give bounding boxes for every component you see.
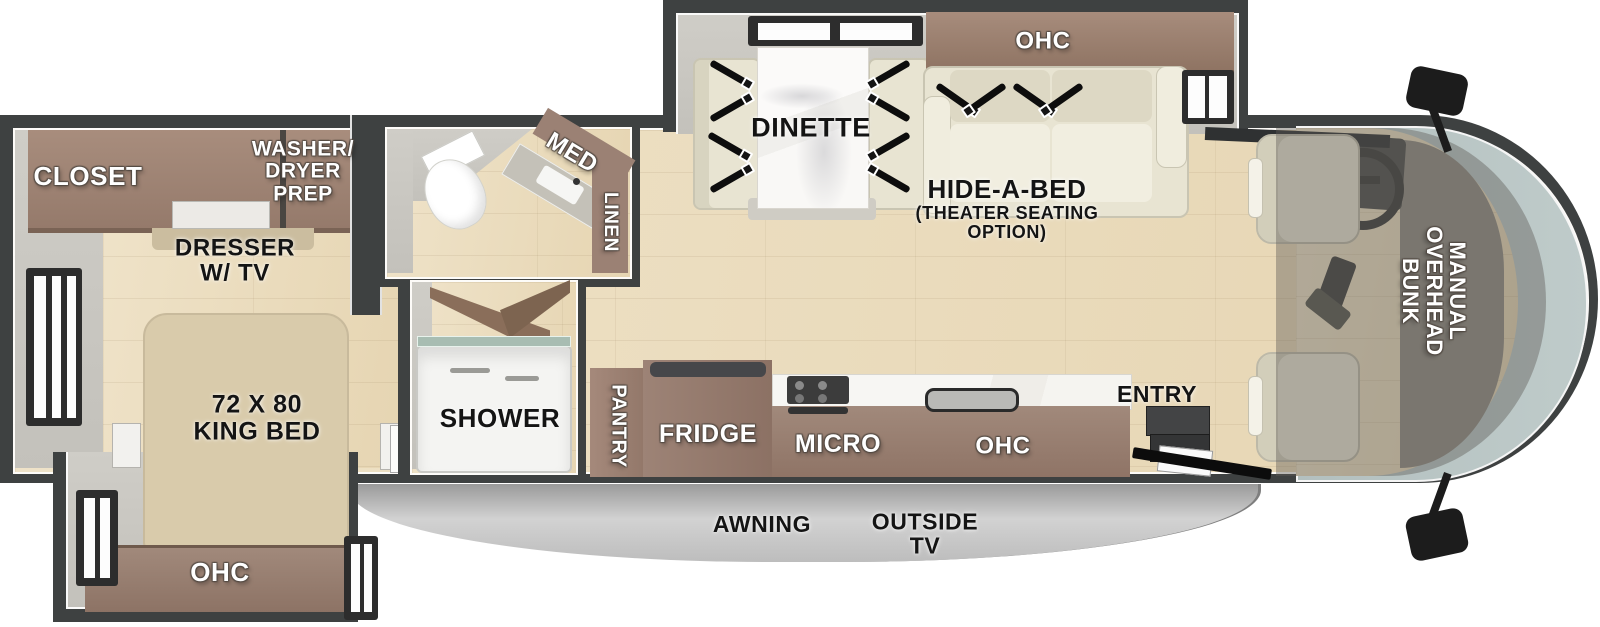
shower-label: SHOWER [440,405,561,433]
cooktop-burner [795,394,804,403]
dinette-window [748,16,923,46]
window-pane [1209,76,1227,118]
cooktop-burner [818,381,827,390]
bedroom-ohc-label: OHC [190,559,250,587]
rv-floorplan: AWNING OUTSIDE TV CLOSET WASHER/ DRYER P… [0,0,1600,627]
window-pane [758,23,830,40]
bedroom-rear-window [26,268,82,426]
fridge [643,360,772,477]
window-pane [84,498,95,578]
vanity-faucet [573,178,580,185]
linen-label: LINEN [600,192,620,252]
pantry-label: PANTRY [607,384,628,468]
bathroom-wall-band-left [387,129,413,273]
hide-a-bed-label: HIDE-A-BED (THEATER SEATING OPTION) [916,176,1099,242]
washer-dryer-prep-label: WASHER/ DRYER PREP [252,139,354,206]
window-pane [34,276,46,418]
entry-label: ENTRY [1117,382,1197,406]
cooktop-burner [818,394,827,403]
fridge-label: FRIDGE [659,421,757,448]
driver-seat-headrest [1248,158,1263,218]
shower-handle [450,368,490,373]
window-pane [351,544,360,612]
king-bed-label: 72 X 80 KING BED [193,392,320,445]
window-pane [100,498,110,578]
dinette-label: DINETTE [751,114,871,143]
nightstand-left [112,423,141,468]
awning-label: AWNING [713,512,811,536]
outside-tv-label: OUTSIDE TV [872,510,978,559]
bed-slideout-window-right [344,536,378,620]
fridge-top [650,362,766,377]
living-slideout-window [1182,70,1234,124]
shower-handle [505,376,539,381]
shower-glass [417,336,571,347]
window-pane [1188,76,1205,118]
window-pane [67,276,76,418]
bed-slideout-window-left [76,490,118,586]
kitchen-ohc-label: OHC [975,433,1030,458]
kitchen-sink [925,388,1019,412]
entry-step-upper [1146,406,1210,436]
passenger-seat-headrest [1248,376,1263,436]
side-mirror-bottom [1404,506,1470,562]
window-pane [840,23,912,40]
cooktop-vent [788,407,848,414]
dresser-tv-label: DRESSER W/ TV [175,236,295,287]
window-pane [52,276,61,418]
micro-label: MICRO [795,431,881,458]
window-pane [364,544,372,612]
side-mirror-top [1404,64,1469,117]
dinette-ohc-label: OHC [1015,28,1070,53]
closet-label: CLOSET [33,163,142,191]
cooktop-burner [795,381,804,390]
overhead-bunk-label: MANUAL OVERHEAD BUNK [1399,226,1469,356]
